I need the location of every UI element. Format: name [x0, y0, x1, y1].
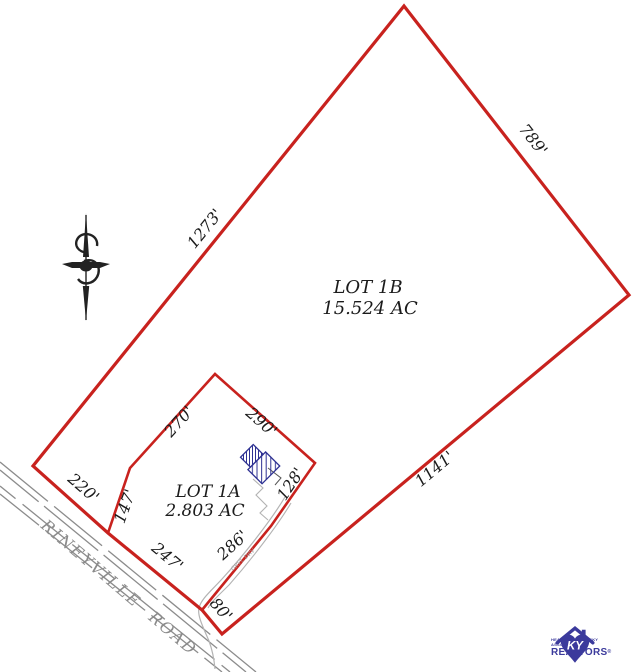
dim-label-147: 147' [110, 486, 140, 525]
plat-survey-map: 1273' 789' 1141' 220' 247' 80' 147' 270'… [0, 0, 640, 672]
dim-label-1273: 1273' [183, 205, 226, 252]
house-footprint-icon [238, 442, 280, 484]
ky-heart-house-icon: KY [554, 625, 596, 667]
realtor-logo: KY HEART OF KENTUCKY ASSOCIATION OF REAL… [554, 625, 638, 669]
plat-drawing: 1273' 789' 1141' 220' 247' 80' 147' 270'… [0, 0, 640, 672]
ky-monogram: KY [567, 641, 584, 653]
lot1b-name-label: LOT 1B [332, 277, 402, 298]
dim-label-270: 270' [159, 402, 197, 441]
walkway-outline [253, 479, 268, 520]
dim-label-220: 220' [63, 469, 103, 507]
dim-label-128: 128' [273, 464, 308, 504]
lot1b-area-label: 15.524 AC [322, 298, 418, 319]
lot1a-area-label: 2.803 AC [164, 501, 244, 521]
lot1a-name-label: LOT 1A [174, 482, 240, 502]
north-arrow-icon [62, 213, 110, 321]
dim-label-290: 290' [241, 403, 281, 441]
lot1b-outer-boundary [33, 6, 629, 634]
